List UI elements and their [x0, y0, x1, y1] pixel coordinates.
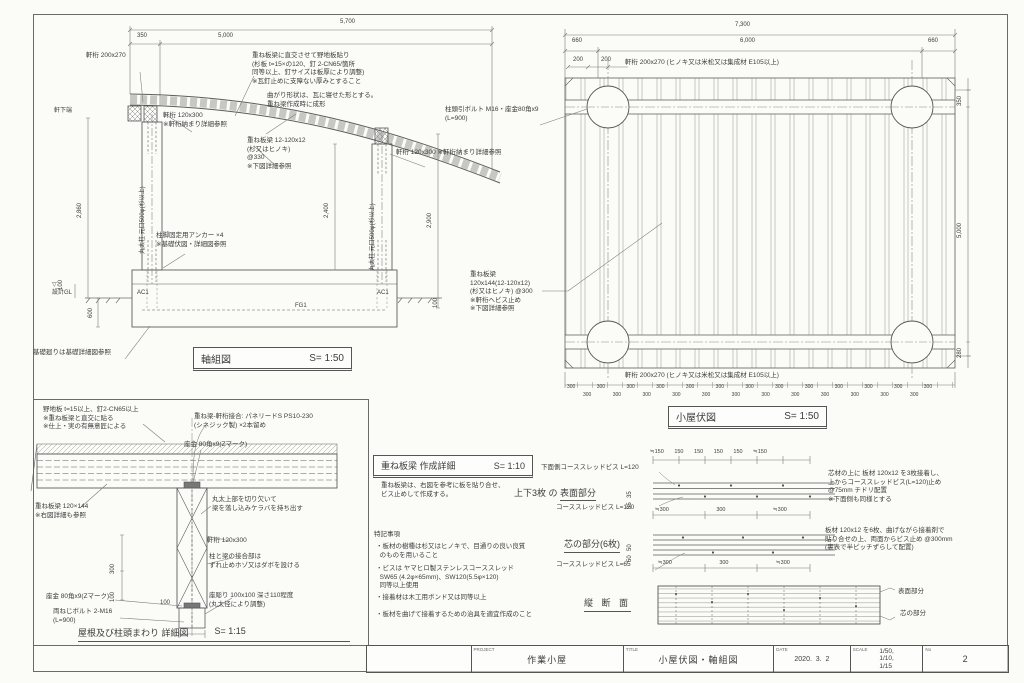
detail-tenon-note: 柱と梁の接合部は ずれ止めホゾ又はダボを設ける	[209, 553, 300, 570]
detail-girder-label: 軒桁 120x300	[207, 537, 247, 546]
eave-girder-section-right-column	[375, 128, 388, 144]
project-value: 作業小屋	[527, 653, 567, 666]
foundation-note: 基礎廻りは基礎詳細図参照	[33, 349, 111, 358]
section-surface-label: 表面部分	[898, 588, 924, 597]
eave-bottom-label: 軒下端	[54, 108, 72, 116]
detail-beam-label: 重ね板梁 120×144 ※右図詳細も参照	[35, 503, 88, 520]
title-block: PROJECT 作業小屋 TITLE 小屋伏図・軸組図 DATE 2020. 3…	[366, 645, 1009, 673]
section-diagram	[650, 582, 895, 632]
plan-beam-label: 重ね板梁 120x144(12-120x12) (杉又はヒノキ) @300 ※軒…	[470, 271, 533, 314]
detail-washer-bottom-label: 座金 80角x9(Zマーク)	[46, 593, 109, 602]
dim-6000: 6,000	[740, 38, 755, 44]
project-label: PROJECT	[474, 647, 495, 652]
scale-label: SCALE	[853, 647, 868, 652]
detail-dim-100b: 100	[160, 600, 170, 606]
note-core: 板材 120x12 を6枚、曲げながら接着剤で 貼り合せの上、両面からビス止め …	[825, 527, 953, 553]
title-block-project: PROJECT 作業小屋	[471, 646, 623, 672]
dim-280-plan: 280	[957, 348, 963, 358]
section-leaders	[880, 588, 895, 620]
surface-screws	[678, 484, 811, 497]
eave-girder-section-left-end	[128, 106, 141, 121]
girder-120-label-right: 軒桁 120x300 ※軒桁納まり詳細参照	[396, 149, 502, 158]
dims-300-mid: ≒300 300 ≒300	[655, 507, 787, 513]
detail-scale: S= 1:15	[215, 626, 246, 639]
bottom-screw-label: 下面側コーススレッドビス L=120	[541, 464, 639, 473]
surface-heading-main: 表面部分	[560, 488, 596, 501]
washer-bottom	[184, 603, 200, 608]
plan-girder-label-bottom: 軒桁 200x270 (ヒノキ又は米松又は集成材 E105以上)	[625, 372, 779, 381]
roof-plan-title: 小屋伏図	[676, 409, 716, 424]
dim-200-a: 200	[573, 57, 583, 63]
washer-top	[184, 482, 200, 488]
elevation-title: 軸組図	[201, 351, 231, 366]
column-label-left: 丸太柱 元口500φ(杉以上)	[137, 186, 146, 254]
section-title: 縦 断 面	[584, 596, 631, 612]
dim-5700: 5,700	[340, 19, 355, 25]
detail-recess-note: 座彫り 100x100 深さ110程度 (丸太径により調整)	[209, 592, 293, 609]
dim-35-b: 35	[627, 502, 633, 509]
core-heading: 芯の部分(6枚)	[564, 537, 620, 553]
dim-2900: 2,900	[427, 213, 433, 228]
beam-spec-note-1: ・板材の樹種は杉又はヒノキで、目通りの良い良質 のものを用いること	[376, 543, 525, 560]
screw120-label: コーススレッドビス L=120	[556, 504, 634, 513]
dim-50-b: 50	[627, 555, 633, 562]
title-block-date: DATE 2020. 3. 2	[773, 646, 850, 672]
no-value: 2	[963, 654, 969, 664]
beam-spec-title-box: 重ね板梁 作成詳細 S= 1:10	[373, 455, 533, 478]
dim-5000: 5,000	[218, 33, 233, 39]
detail-dim-100: 100	[110, 592, 116, 602]
foundation	[132, 270, 397, 327]
dim-100-left: 100	[58, 280, 64, 290]
no-label: No	[925, 647, 931, 652]
date-label: DATE	[776, 647, 788, 652]
ac1-label-right: AC1	[377, 290, 389, 296]
detail-title-row: 屋根及び柱頭まわり 詳細図 S= 1:15	[78, 626, 350, 642]
title-block-scale: SCALE 1/50, 1/10, 1/15	[850, 646, 923, 672]
dim-row-300-lower: 300 300 300 300 300 300 300 300 300 300 …	[583, 392, 918, 398]
dims-300-bottom: ≒300 300 ≒300	[658, 560, 790, 566]
detail-sheathing-note: 野地板 t=15以上、釘2-CN65以上 ※重ね板梁と直交に貼る ※仕上・実の有…	[43, 406, 139, 432]
laminated-beam-label: 重ね板梁 12-120x12 (杉又はヒノキ) @330 ※下図詳細参照	[247, 137, 306, 171]
drawing-sheet: 軒桁 200x270 重ね板梁に直交させて野地板貼り (杉板 t=15×の120…	[0, 0, 1024, 683]
title-block-title: TITLE 小屋伏図・軸組図	[623, 646, 773, 672]
fg1-label: FG1	[295, 303, 307, 309]
dim-7300: 7,300	[735, 22, 750, 28]
beam-spec-note-2: ・ビスは ヤマヒロ製ステンレスコーススレッド SW65 (4.2φ×65mm)、…	[376, 565, 514, 591]
dim-660-left: 660	[572, 38, 582, 44]
dim-100-right: 100	[433, 298, 439, 308]
sheathing-note: 重ね板梁に直交させて野地板貼り (杉板 t=15×の120、釘 2-CN65/箇…	[252, 52, 364, 86]
detail-bolt-label: 両ねじボルト 2-M16 (L=900)	[53, 608, 112, 625]
detail-title: 屋根及び柱頭まわり 詳細図	[78, 626, 189, 639]
ground-line	[85, 298, 442, 303]
roof-plan-drawing	[540, 15, 1010, 415]
eave-girder-section-left-column	[144, 106, 157, 122]
dim-35-a: 35	[627, 491, 633, 498]
dim-5000-plan: 5,000	[957, 223, 963, 238]
surface-heading-prefix: 上下3枚 の	[514, 488, 560, 498]
elevation-scale: S= 1:50	[309, 353, 344, 364]
scale-value: 1/50, 1/10, 1/15	[879, 648, 893, 670]
title-label: TITLE	[626, 647, 638, 652]
dim-200-b: 200	[601, 57, 611, 63]
dims-150-row: ≒150 150 150 150 150 ≒150	[650, 449, 767, 455]
detail-joint-note: 重ね梁-軒桁接合: パネリードS PS10-230 (シネジック製) ×2本留め	[194, 413, 313, 430]
elevation-title-box: 軸組図 S= 1:50	[193, 347, 352, 371]
girder-120-label-left: 軒桁 120x300 ※軒桁納まり詳細参照	[163, 112, 227, 129]
beam-spec-note-3: ・接着材は木工用ボンド又は同等以上	[376, 594, 487, 603]
beam-spec-note-4: ・板材を曲げて接着するための治具を適宜作成のこと	[376, 611, 532, 620]
detail-dim-300: 300	[110, 564, 116, 574]
roof-plan-scale: S= 1:50	[784, 411, 819, 422]
ac1-label-left: AC1	[137, 290, 149, 296]
dim-350: 350	[137, 33, 147, 39]
title-block-number: No 2	[922, 646, 1008, 672]
detail-log-note: 丸太上部を切り欠いて 梁を落し込みケラバを持ち出す	[212, 496, 303, 513]
beam-spec-notes-title: 特記事項	[374, 531, 400, 540]
roof-plan-title-box: 小屋伏図 S= 1:50	[668, 406, 827, 429]
plan-girder-label-top: 軒桁 200x270 (ヒノキ又は米松又は集成材 E105以上)	[625, 59, 779, 68]
title-block-spacer	[367, 646, 471, 672]
dim-350-plan: 350	[957, 96, 963, 106]
dim-row-300-upper: 300 300 300 300 300 300 300 300 300 300 …	[567, 384, 932, 390]
dim-2860: 2,860	[77, 203, 83, 218]
surface-boards	[653, 483, 835, 499]
beam-spec-scale: S= 1:10	[494, 461, 525, 471]
core-boards	[653, 535, 835, 555]
dim-600: 600	[88, 308, 94, 318]
curve-shape-note: 曲がり形状は、瓦に寝せた形とする。 重ね梁作成時に成形	[267, 92, 377, 109]
eave-girder-label: 軒桁 200x270	[86, 52, 126, 61]
section-core-label: 芯の部分	[900, 610, 926, 619]
column-label-right: 丸太柱 元口500φ(杉以上)	[367, 203, 376, 271]
dim-50-a: 50	[627, 544, 633, 551]
screw65-label: コーススレッドビス L=65	[556, 561, 631, 570]
beam-spec-intro: 重ね板梁は、右図を参考に板を貼り合せ、 ビス止めして作成する。	[381, 482, 505, 499]
surface-heading: 上下3枚 の 表面部分	[514, 486, 596, 499]
beam-spec-title: 重ね板梁 作成詳細	[381, 459, 456, 472]
title-value: 小屋伏図・軸組図	[658, 653, 738, 666]
detail-washer-top-label: 座金 80角x9(Zマーク)	[184, 441, 247, 450]
anchor-note: 柱脚固定用アンカー ×4 ※基礎伏図・詳細図参照	[156, 232, 226, 249]
date-value: 2020. 3. 2	[794, 656, 829, 663]
head-bolt-label: 柱頭引ボルト M16・座金80角x9 (L=900)	[445, 106, 539, 123]
dim-2400: 2,400	[324, 203, 330, 218]
note-surface: 芯材の上に 板材 120x12 を3枚接着し、 上からコーススレッドビス(L=1…	[828, 470, 943, 504]
dim-660-right: 660	[928, 38, 938, 44]
